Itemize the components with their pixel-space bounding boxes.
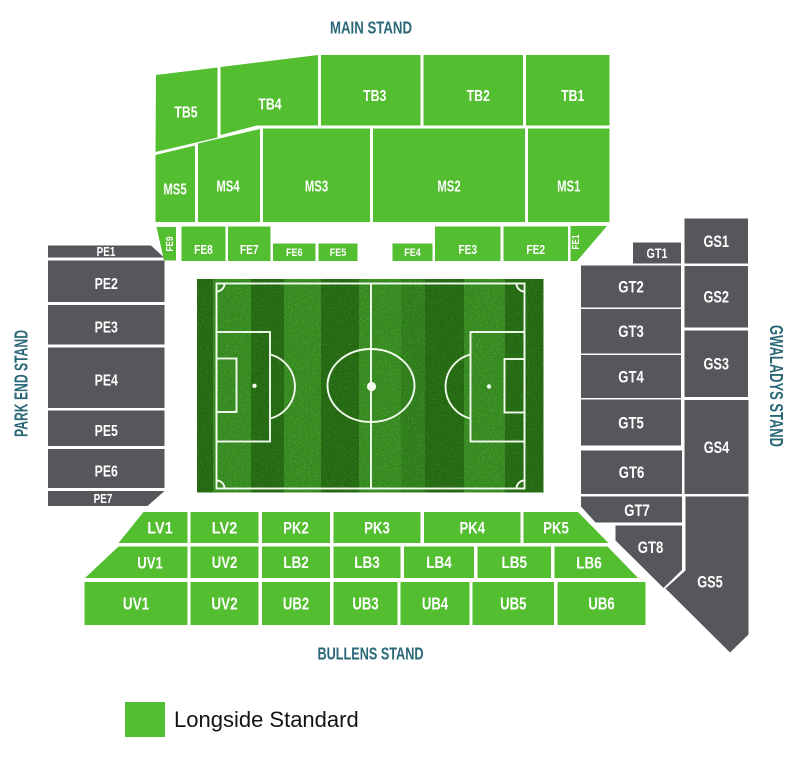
svg-text:GT4: GT4 (618, 367, 644, 386)
svg-text:MAIN STAND: MAIN STAND (330, 18, 412, 38)
svg-text:GS4: GS4 (704, 438, 730, 457)
svg-text:FE7: FE7 (240, 243, 259, 257)
svg-text:PK4: PK4 (460, 518, 486, 537)
svg-text:PE3: PE3 (95, 320, 119, 337)
svg-text:FE5: FE5 (330, 247, 347, 259)
svg-text:GS2: GS2 (704, 288, 730, 307)
svg-text:GT7: GT7 (624, 501, 650, 520)
svg-text:FE6: FE6 (286, 247, 303, 259)
svg-text:PARK END STAND: PARK END STAND (12, 330, 32, 437)
svg-text:PE1: PE1 (97, 245, 116, 259)
svg-text:TB2: TB2 (467, 88, 490, 105)
svg-text:GS3: GS3 (704, 355, 730, 374)
svg-text:FE8: FE8 (194, 243, 213, 257)
svg-text:PK5: PK5 (543, 518, 569, 537)
svg-text:GT8: GT8 (638, 538, 664, 557)
svg-text:GT5: GT5 (618, 413, 644, 432)
svg-text:Longside Standard: Longside Standard (174, 707, 359, 732)
svg-text:PE2: PE2 (95, 276, 118, 293)
svg-text:UB3: UB3 (352, 594, 378, 614)
svg-text:UB5: UB5 (500, 594, 526, 614)
svg-text:MS1: MS1 (557, 178, 581, 195)
svg-text:LB2: LB2 (283, 553, 309, 572)
svg-text:PE6: PE6 (95, 463, 119, 480)
svg-text:LB4: LB4 (426, 553, 452, 572)
svg-text:LB3: LB3 (354, 553, 380, 572)
svg-text:PE5: PE5 (95, 423, 119, 440)
svg-text:PE4: PE4 (95, 373, 119, 390)
svg-text:UV1: UV1 (137, 553, 163, 572)
svg-text:LB5: LB5 (502, 553, 528, 572)
svg-text:GS1: GS1 (704, 232, 730, 251)
svg-text:MS5: MS5 (163, 181, 187, 198)
svg-text:TB5: TB5 (174, 104, 198, 121)
svg-text:UB2: UB2 (283, 594, 309, 614)
svg-text:UV1: UV1 (123, 594, 149, 614)
svg-text:UV2: UV2 (212, 553, 238, 572)
svg-text:MS2: MS2 (437, 178, 460, 195)
svg-text:GWALADYS STAND: GWALADYS STAND (766, 325, 786, 447)
svg-text:UB6: UB6 (588, 594, 614, 614)
svg-text:TB4: TB4 (258, 96, 282, 113)
svg-text:GT2: GT2 (618, 277, 644, 296)
svg-text:PK3: PK3 (364, 518, 390, 537)
svg-text:MS3: MS3 (305, 178, 329, 195)
svg-text:FE2: FE2 (526, 243, 545, 257)
svg-text:BULLENS STAND: BULLENS STAND (318, 644, 424, 664)
svg-text:GT6: GT6 (619, 463, 645, 482)
svg-text:MS4: MS4 (216, 178, 240, 195)
svg-text:PE7: PE7 (94, 492, 113, 506)
svg-text:PK2: PK2 (283, 518, 309, 537)
svg-text:LV1: LV1 (147, 518, 173, 537)
svg-text:FE3: FE3 (458, 243, 477, 257)
svg-text:GT3: GT3 (618, 322, 644, 341)
svg-text:FE1: FE1 (571, 234, 582, 249)
svg-text:UV2: UV2 (211, 594, 237, 614)
svg-text:LV2: LV2 (212, 518, 238, 537)
svg-text:LB6: LB6 (576, 553, 602, 572)
svg-text:FE4: FE4 (404, 247, 421, 259)
svg-text:GS5: GS5 (697, 572, 723, 591)
svg-text:TB1: TB1 (561, 88, 585, 105)
svg-text:TB3: TB3 (363, 88, 387, 105)
svg-text:FE9: FE9 (165, 236, 176, 251)
svg-text:GT1: GT1 (647, 245, 668, 261)
svg-text:UB4: UB4 (422, 594, 448, 614)
